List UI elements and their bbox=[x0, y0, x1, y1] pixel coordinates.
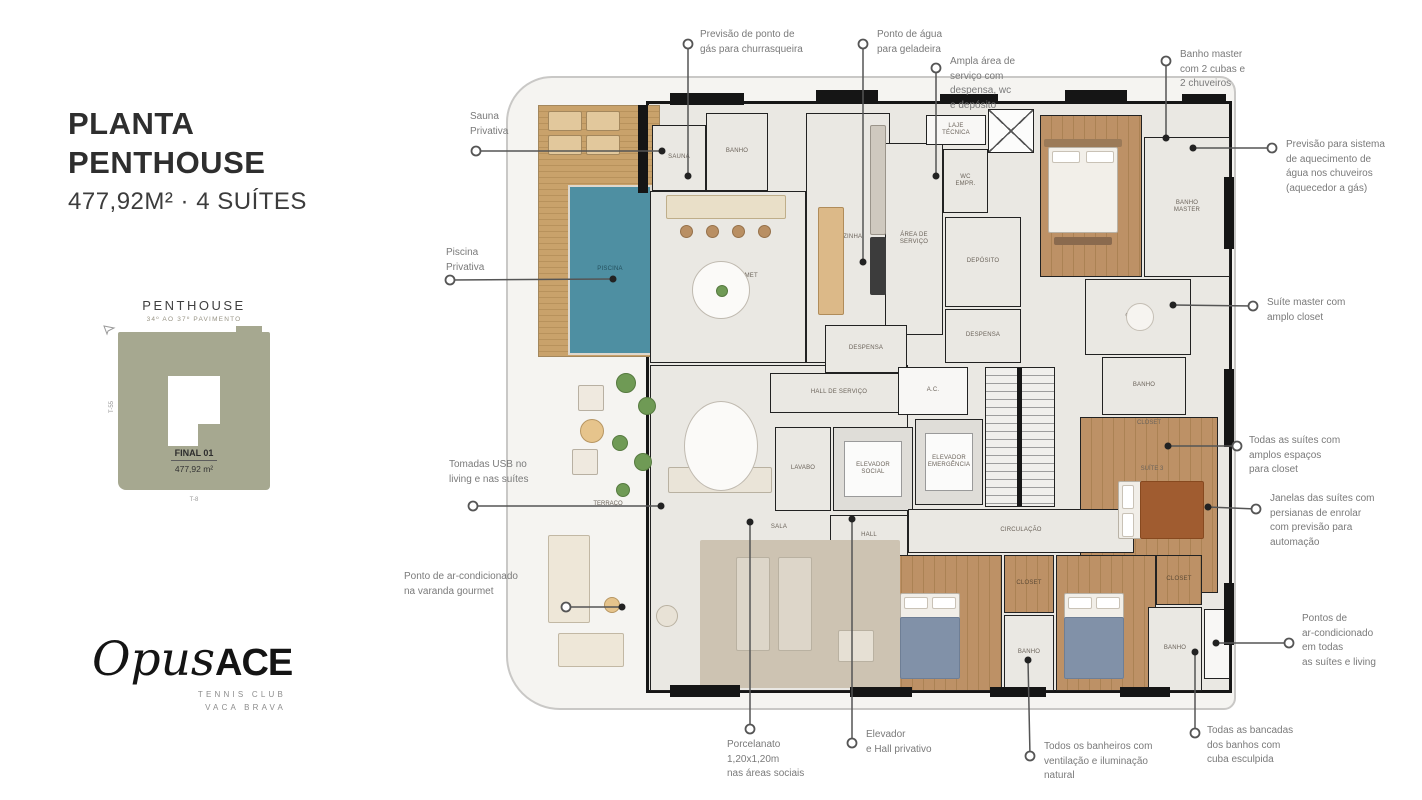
furniture-decor bbox=[1122, 485, 1134, 509]
room-label-pool: PISCINA bbox=[597, 266, 622, 274]
furniture-decor bbox=[680, 225, 693, 238]
furniture-decor bbox=[548, 111, 582, 131]
wall-segment bbox=[850, 687, 912, 697]
room-closet-suite1: CLOSET bbox=[1004, 555, 1054, 613]
room-label-banho-master: BANHO MASTER bbox=[1174, 200, 1200, 215]
page-title: PLANTA PENTHOUSE 477,92M² · 4 SUÍTES bbox=[68, 104, 307, 216]
room-label-closet-suite2: CLOSET bbox=[1166, 576, 1191, 584]
wall-segment bbox=[1065, 90, 1127, 102]
room-closet-suite2: CLOSET bbox=[1156, 555, 1202, 605]
furniture-decor bbox=[1044, 139, 1122, 147]
room-label-deposito: DEPÓSITO bbox=[967, 258, 1000, 266]
room-label-area-servico: ÁREA DE SERVIÇO bbox=[900, 232, 928, 247]
furniture-decor bbox=[838, 630, 874, 662]
callout-banho-master: Banho master com 2 cubas e 2 chuveiros bbox=[1180, 48, 1245, 92]
furniture-decor bbox=[612, 435, 628, 451]
wall-segment bbox=[1182, 94, 1226, 104]
callout-agua-geladeira: Ponto de água para geladeira bbox=[877, 28, 942, 57]
furniture-decor bbox=[578, 385, 604, 411]
room-label-elevador-social: ELEVADOR SOCIAL bbox=[856, 462, 890, 477]
room-label-elevador-emergencia: ELEVADOR EMERGÊNCIA bbox=[928, 455, 970, 470]
site-plan: PENTHOUSE 34º AO 37º PAVIMENTO T-55 FINA… bbox=[96, 298, 292, 503]
room-label-lavabo: LAVABO bbox=[791, 465, 815, 473]
callout-bancadas-cuba: Todas as bancadas dos banhos com cuba es… bbox=[1207, 724, 1293, 768]
wall-segment bbox=[990, 687, 1046, 697]
title-line1: PLANTA bbox=[68, 104, 307, 143]
marketing-floorplan-page: PLANTA PENTHOUSE 477,92M² · 4 SUÍTES PEN… bbox=[0, 0, 1422, 800]
callout-aquecimento: Previsão para sistema de aquecimento de … bbox=[1286, 138, 1385, 196]
furniture-decor bbox=[932, 597, 956, 609]
wall-segment bbox=[1120, 687, 1170, 697]
furniture-decor bbox=[1052, 151, 1080, 163]
siteplan-block-tab bbox=[236, 326, 262, 333]
room-banho-master: BANHO MASTER bbox=[1144, 137, 1230, 277]
room-elevador-emergencia: ELEVADOR EMERGÊNCIA bbox=[915, 419, 983, 505]
furniture-decor bbox=[1086, 151, 1114, 163]
room-elevador-servico bbox=[988, 109, 1034, 153]
callout-porcelanato: Porcelanato 1,20x1,20m nas áreas sociais bbox=[727, 738, 804, 782]
room-banho-suite1: BANHO bbox=[1004, 615, 1054, 691]
wall-segment bbox=[1224, 583, 1234, 645]
room-banho-terraco: BANHO bbox=[706, 113, 768, 191]
logo-script-text: Opus bbox=[92, 634, 215, 686]
furniture-decor bbox=[1054, 237, 1112, 245]
furniture-decor bbox=[572, 449, 598, 475]
logo-subline2: VACA BRAVA bbox=[92, 701, 286, 714]
room-stairs bbox=[985, 367, 1055, 507]
furniture-decor bbox=[778, 557, 812, 651]
wall-segment bbox=[670, 93, 744, 105]
callout-janelas-persianas: Janelas das suítes com persianas de enro… bbox=[1270, 492, 1375, 550]
room-label-hall-privativo: HALL bbox=[861, 532, 877, 540]
furniture-decor bbox=[736, 557, 770, 651]
furniture-decor bbox=[758, 225, 771, 238]
room-label-ac: A.C. bbox=[927, 387, 939, 395]
callout-suites-closet: Todas as suítes com amplos espaços para … bbox=[1249, 434, 1340, 478]
furniture-decor bbox=[616, 483, 630, 497]
furniture-decor bbox=[1096, 597, 1120, 609]
floor-plan: PISCINASALAESPAÇO GOURMETCOZINHASAUNABAN… bbox=[498, 68, 1246, 718]
callout-banheiros-ventilacao: Todos os banheiros com ventilação e ilum… bbox=[1044, 740, 1152, 784]
furniture-decor bbox=[580, 419, 604, 443]
wall-segment bbox=[670, 685, 740, 697]
furniture-decor bbox=[656, 605, 678, 627]
room-despensa-servico: DESPENSA bbox=[945, 309, 1021, 363]
furniture-decor bbox=[1126, 303, 1154, 331]
callout-area-servico: Ampla área de serviço com despensa, wc e… bbox=[950, 55, 1015, 113]
furniture-decor bbox=[706, 225, 719, 238]
room-label-hall-servico: HALL DE SERVIÇO bbox=[811, 389, 867, 397]
siteplan-unit-info: FINAL 01 477,92 m² bbox=[118, 443, 270, 474]
callout-elevador-hall: Elevador e Hall privativo bbox=[866, 728, 932, 757]
siteplan-block: T-55 FINAL 01 477,92 m² bbox=[118, 332, 270, 490]
plan-label-terra-o: TERRAÇO bbox=[593, 501, 622, 507]
furniture-decor bbox=[666, 195, 786, 219]
room-laje-tecnica: LAJE TÉCNICA bbox=[926, 115, 986, 145]
room-banho-suite3: BANHO bbox=[1102, 357, 1186, 415]
furniture-decor bbox=[732, 225, 745, 238]
furniture-decor bbox=[870, 237, 886, 295]
siteplan-unit-label: FINAL 01 bbox=[171, 448, 218, 461]
siteplan-unit-area: 477,92 m² bbox=[118, 464, 270, 474]
room-label-laje-tecnica: LAJE TÉCNICA bbox=[942, 123, 970, 138]
room-banho-suite2: BANHO bbox=[1148, 607, 1202, 691]
wall-segment bbox=[816, 90, 878, 104]
siteplan-axis-left: T-55 bbox=[109, 401, 115, 413]
furniture-decor bbox=[586, 135, 620, 155]
room-despensa-social: DESPENSA bbox=[825, 325, 907, 373]
title-line2: PENTHOUSE bbox=[68, 143, 307, 182]
furniture-decor bbox=[638, 397, 656, 415]
callout-piscina-privativa: Piscina Privativa bbox=[446, 246, 484, 275]
siteplan-subheading: 34º AO 37º PAVIMENTO bbox=[96, 316, 292, 323]
room-label-banho-suite3: BANHO bbox=[1133, 382, 1155, 390]
furniture-decor bbox=[1064, 617, 1124, 679]
wall-segment bbox=[1224, 177, 1234, 249]
furniture-decor bbox=[870, 125, 886, 235]
room-ac: A.C. bbox=[898, 367, 968, 415]
north-arrow-icon bbox=[102, 322, 116, 336]
brand-logo: OpusACE TENNIS CLUB VACA BRAVA bbox=[92, 634, 288, 714]
plan-label-closet: CLOSET bbox=[1137, 420, 1161, 426]
siteplan-unit-footprint bbox=[168, 376, 220, 424]
room-label-banho-terraco: BANHO bbox=[726, 148, 748, 156]
wall-segment bbox=[1224, 369, 1234, 447]
room-circulacao: CIRCULAÇÃO bbox=[908, 509, 1134, 553]
furniture-decor bbox=[1068, 597, 1092, 609]
logo-subline1: TENNIS CLUB bbox=[92, 688, 286, 701]
furniture-decor bbox=[818, 207, 844, 315]
furniture-decor bbox=[634, 453, 652, 471]
furniture-decor bbox=[904, 597, 928, 609]
siteplan-axis-bottom: T-8 bbox=[96, 497, 292, 503]
callout-suite-master-closet: Suíte master com amplo closet bbox=[1267, 296, 1345, 325]
furniture-decor bbox=[900, 617, 960, 679]
room-label-circulacao: CIRCULAÇÃO bbox=[1000, 527, 1041, 535]
siteplan-heading: PENTHOUSE bbox=[96, 298, 292, 313]
callout-pontos-ar: Pontos de ar-condicionado em todas as su… bbox=[1302, 612, 1376, 670]
furniture-decor bbox=[1140, 481, 1204, 539]
furniture-decor bbox=[1122, 513, 1134, 537]
furniture-decor bbox=[548, 535, 590, 623]
furniture-decor bbox=[684, 401, 758, 491]
furniture-decor bbox=[548, 135, 582, 155]
room-deposito: DEPÓSITO bbox=[945, 217, 1021, 307]
title-subtitle: 477,92M² · 4 SUÍTES bbox=[68, 188, 307, 216]
plan-label-su-te-3: SUÍTE 3 bbox=[1141, 466, 1164, 472]
room-label-wc-empregada: WC EMPR. bbox=[955, 174, 975, 189]
room-elevador-social: ELEVADOR SOCIAL bbox=[833, 427, 913, 511]
room-label-despensa-social: DESPENSA bbox=[849, 345, 883, 353]
floor-plan-area: PISCINASALAESPAÇO GOURMETCOZINHASAUNABAN… bbox=[520, 85, 1232, 703]
room-lavabo: LAVABO bbox=[775, 427, 831, 511]
room-label-banho-suite1: BANHO bbox=[1018, 649, 1040, 657]
callout-ar-varanda: Ponto de ar-condicionado na varanda gour… bbox=[404, 570, 518, 599]
room-label-sauna: SAUNA bbox=[668, 154, 690, 162]
room-label-closet-suite1: CLOSET bbox=[1016, 580, 1041, 588]
logo-bold-text: ACE bbox=[215, 642, 292, 685]
furniture-decor bbox=[586, 111, 620, 131]
furniture-decor bbox=[558, 633, 624, 667]
room-label-sala: SALA bbox=[771, 524, 787, 532]
callout-tomadas-usb: Tomadas USB no living e nas suítes bbox=[449, 458, 529, 487]
room-label-banho-suite2: BANHO bbox=[1164, 645, 1186, 653]
room-pool: PISCINA bbox=[568, 185, 652, 355]
furniture-decor bbox=[616, 373, 636, 393]
furniture-decor bbox=[604, 597, 620, 613]
furniture-decor bbox=[716, 285, 728, 297]
callout-sauna-privativa: Sauna Privativa bbox=[470, 110, 508, 139]
room-sauna: SAUNA bbox=[652, 125, 706, 191]
room-hall-servico: HALL DE SERVIÇO bbox=[770, 373, 908, 413]
wall-segment bbox=[638, 105, 648, 193]
room-wc-empregada: WC EMPR. bbox=[943, 149, 988, 213]
room-label-despensa-servico: DESPENSA bbox=[966, 332, 1000, 340]
room-area-servico: ÁREA DE SERVIÇO bbox=[885, 143, 943, 335]
callout-gas-churrasqueira: Previsão de ponto de gás para churrasque… bbox=[700, 28, 803, 57]
